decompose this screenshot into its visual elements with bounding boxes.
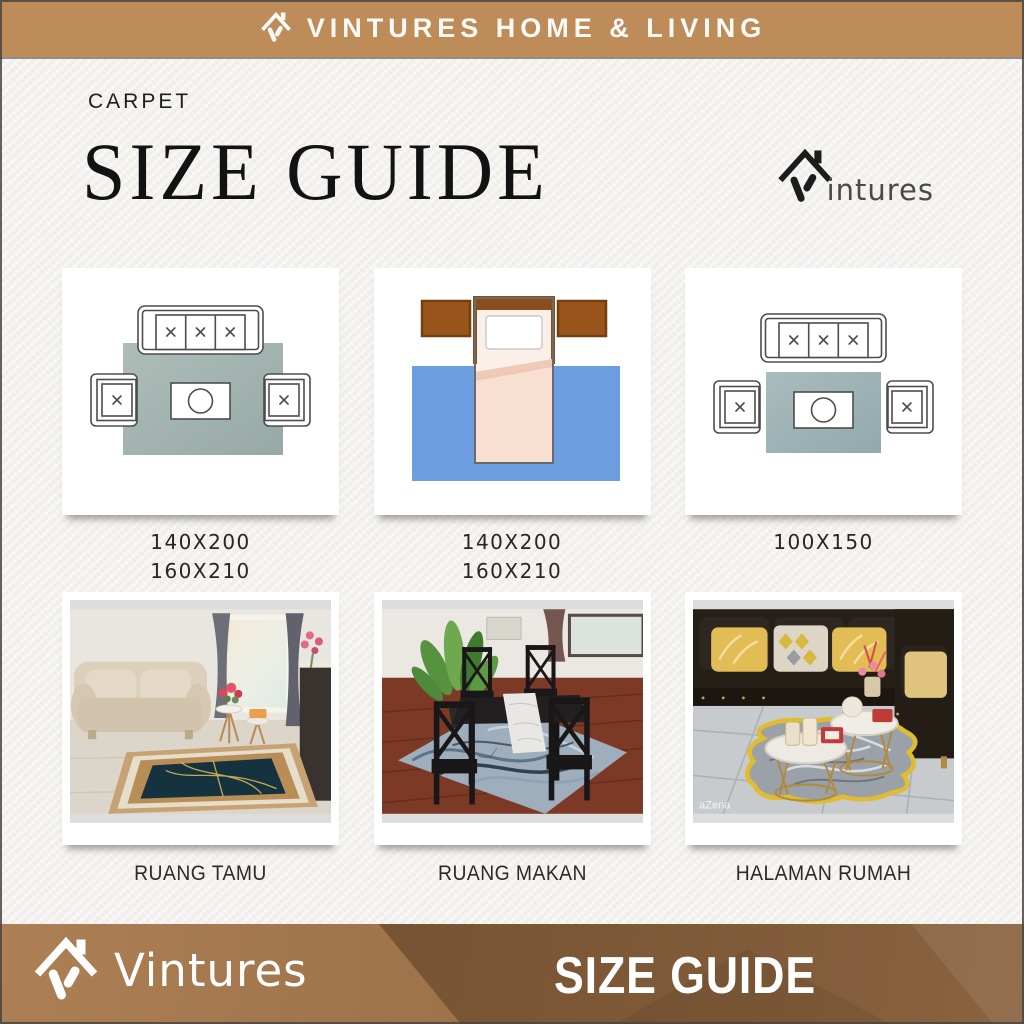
size-line: 140X200 [62,528,339,557]
size-line: 100X150 [685,528,962,557]
room-layout-diagram-small-rug [685,268,962,515]
corner-brand-logo: intures [774,146,934,209]
sofa-beige [71,662,211,740]
size-line: 160X210 [374,557,651,586]
photo-card-sectional: aZena [685,592,962,845]
size-label: 100X150 [685,528,962,586]
room-layout-diagram-large-rug [62,268,339,515]
size-guide-poster: VINTURES HOME & LIVING CARPET SIZE GUIDE… [0,0,1024,1024]
photo-caption: HALAMAN RUMAH [696,862,951,886]
brand-name: VINTURES HOME & LIVING [307,13,767,44]
diagram-card-living-large-rug [62,268,339,515]
marble-rug-navy-gold [108,743,318,814]
photo-caption: RUANG MAKAN [385,862,640,886]
photo-watermark: aZena [699,800,731,812]
photo-card-dining-room [374,592,651,845]
photo-caption: RUANG TAMU [73,862,328,886]
diagram-cards-row [62,268,962,515]
size-labels-row: 140X200 160X210 140X200 160X210 100X150 [62,528,962,586]
size-line: 140X200 [374,528,651,557]
brand-house-icon [258,9,294,48]
photo-cards-row: aZena [62,592,962,845]
logo-wordmark: intures [827,173,934,207]
category-label: CARPET [88,90,191,114]
diagram-card-living-small-rug [685,268,962,515]
bottom-brand-logo: Vintures [30,934,308,1007]
room-layout-diagram-bedroom [374,268,651,515]
dining-room-photo [382,600,643,823]
photo-card-living-room [62,592,339,845]
page-title: SIZE GUIDE [82,125,549,219]
diagram-card-bedroom-rug [374,268,651,515]
bottom-brand-name: Vintures [114,944,308,997]
bottom-size-guide-label: SIZE GUIDE [530,946,840,1006]
size-label: 140X200 160X210 [62,528,339,586]
top-banner: VINTURES HOME & LIVING [0,0,1024,59]
bottom-banner: Vintures SIZE GUIDE [0,924,1024,1024]
sectional-sofa-photo: aZena [693,600,954,823]
size-line: 160X210 [62,557,339,586]
captions-row: RUANG TAMU RUANG MAKAN HALAMAN RUMAH [62,862,962,886]
size-label: 140X200 160X210 [374,528,651,586]
bottom-house-icon [30,934,102,1007]
living-room-photo [70,600,331,823]
